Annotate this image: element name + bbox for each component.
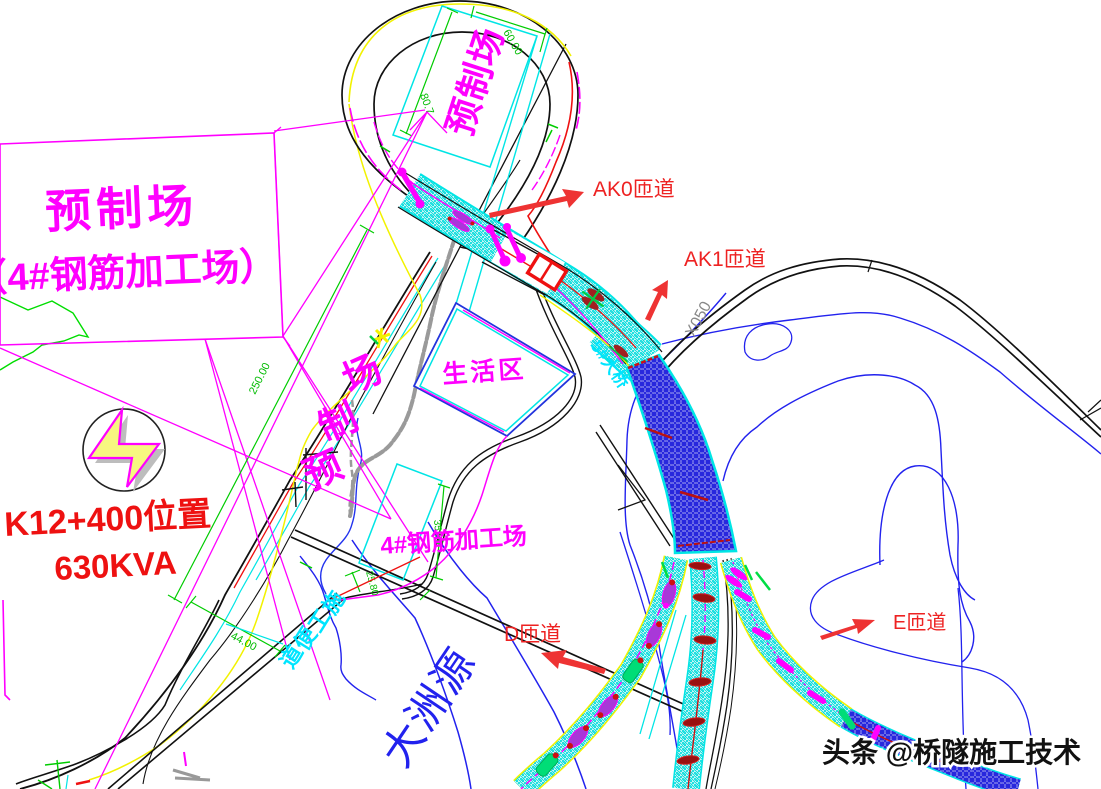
- svg-text:E匝道: E匝道: [893, 611, 946, 634]
- svg-text:头条 @桥隧施工技术: 头条 @桥隧施工技术: [822, 737, 1081, 768]
- svg-text:AK1匝道: AK1匝道: [684, 248, 766, 271]
- svg-text:预制场: 预制场: [44, 179, 199, 238]
- svg-text:生活区: 生活区: [441, 355, 527, 389]
- svg-text:D匝道: D匝道: [504, 623, 561, 646]
- svg-text:630KVA: 630KVA: [53, 544, 177, 587]
- svg-text:AK0匝道: AK0匝道: [593, 178, 675, 201]
